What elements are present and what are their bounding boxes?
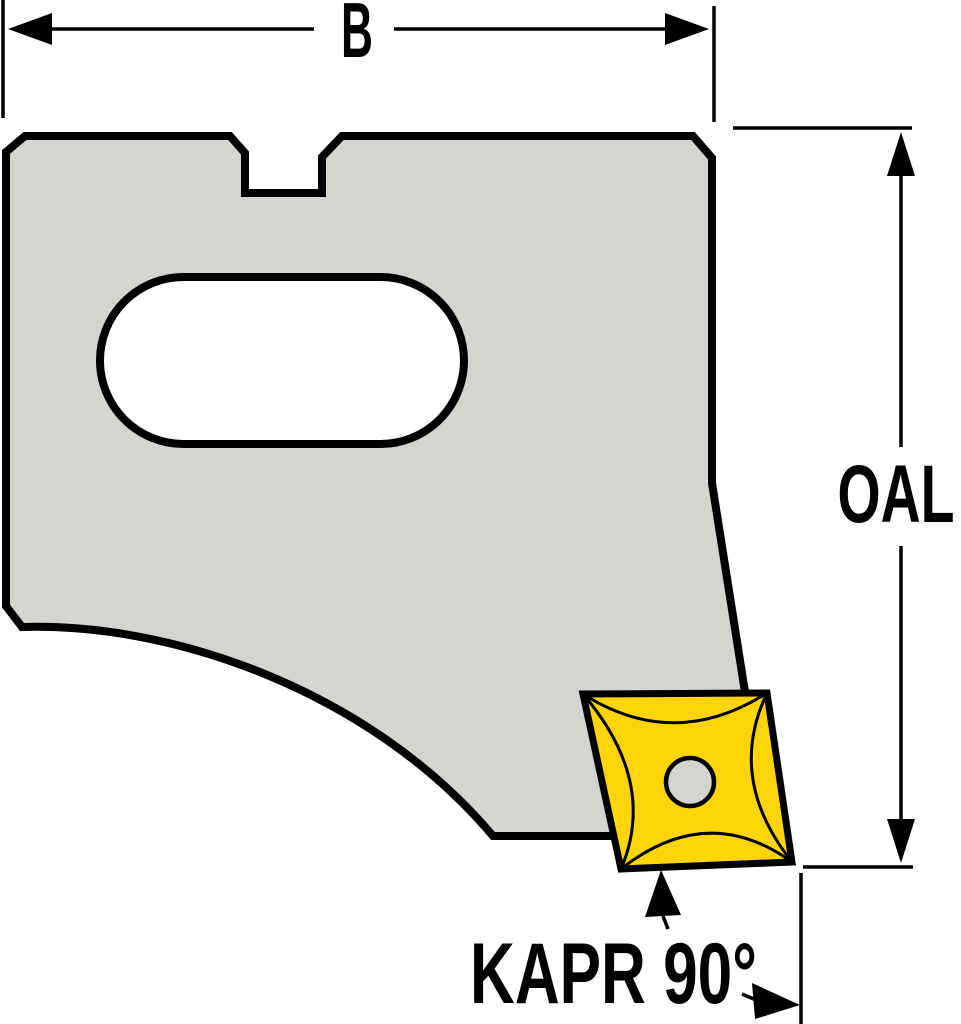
- kapr-label: KAPR 90°: [470, 926, 757, 1022]
- dimension-b: B: [3, 0, 714, 122]
- cutting-insert: [583, 693, 792, 869]
- dim-oal-arrowhead-bottom: [887, 819, 915, 863]
- drawing-canvas: B OAL KAPR 90°: [0, 0, 961, 1024]
- insert-screw-hole: [666, 758, 714, 806]
- kapr-right-arrowhead: [752, 983, 800, 1019]
- dim-oal-label: OAL: [838, 449, 955, 540]
- mounting-slot-hole: [100, 277, 464, 444]
- dim-oal-arrowhead-top: [887, 132, 915, 176]
- kapr-up-arrowhead: [645, 870, 681, 917]
- annotation-kapr: KAPR 90°: [470, 870, 801, 1024]
- toolholder-technical-drawing: B OAL KAPR 90°: [0, 0, 961, 1024]
- dim-b-arrowhead-left: [8, 13, 52, 45]
- dim-b-arrowhead-right: [665, 13, 709, 45]
- dim-b-label: B: [341, 0, 373, 74]
